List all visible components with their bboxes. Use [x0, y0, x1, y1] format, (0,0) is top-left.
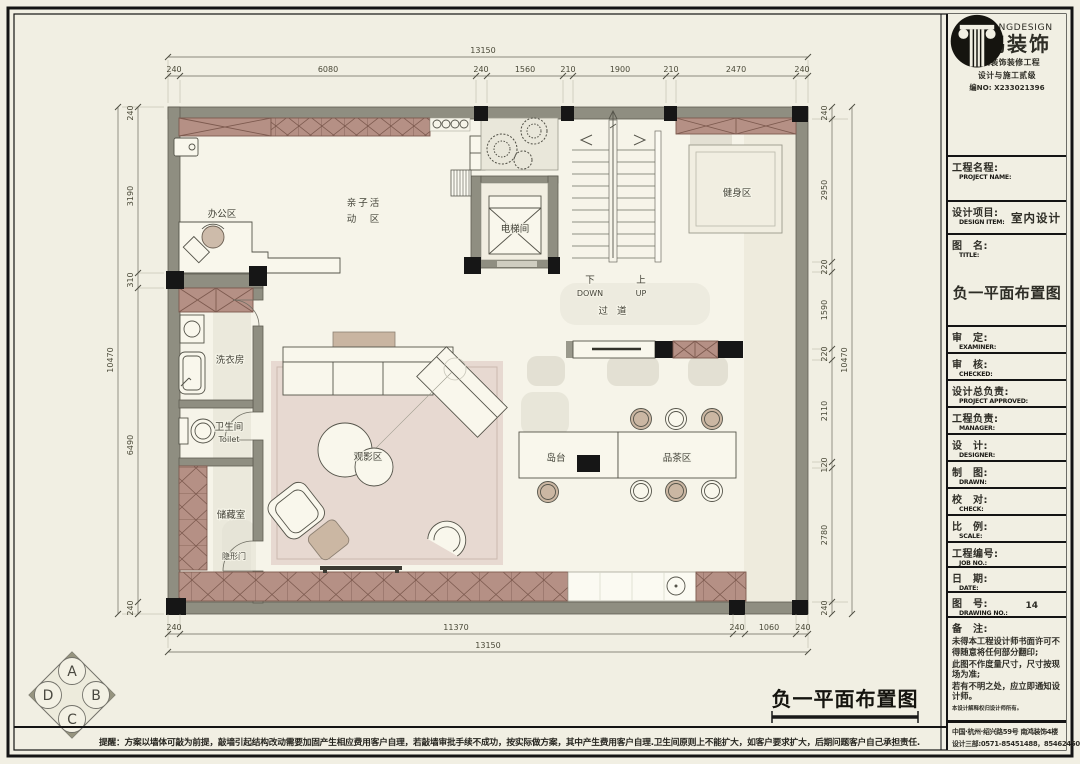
- company-address: 中国·杭州·绍兴路59号 南鸿装饰4楼: [952, 726, 1062, 736]
- field-drawn: 制 图: DRAWN:: [948, 462, 1066, 489]
- note-2: 此图不作度量尺寸，尺寸按现场为准;: [952, 659, 1062, 680]
- label-corridor: 过 道: [598, 305, 629, 317]
- svg-text:B: B: [91, 688, 101, 704]
- svg-text:1590: 1590: [820, 300, 829, 320]
- label-stairs-up-zh: 上: [636, 275, 646, 286]
- svg-text:2950: 2950: [820, 180, 829, 200]
- svg-text:240: 240: [473, 65, 488, 74]
- svg-text:1560: 1560: [515, 65, 535, 74]
- svg-text:210: 210: [560, 65, 575, 74]
- laundry-fixtures: [179, 315, 205, 394]
- label-island: 岛台: [546, 452, 565, 464]
- svg-text:10470: 10470: [106, 347, 115, 372]
- console-cabinet: [566, 341, 743, 358]
- svg-text:1900: 1900: [610, 65, 630, 74]
- svg-text:240: 240: [729, 623, 744, 632]
- svg-text:2470: 2470: [726, 65, 746, 74]
- label-cinema: 观影区: [354, 452, 383, 463]
- label-hidden-door: 隐形门: [222, 551, 246, 561]
- field-checked: 审 核: CHECKED:: [948, 354, 1066, 381]
- field-design-item: 设计项目: DESIGN ITEM: 室内设计: [948, 202, 1066, 235]
- label-tea: 品茶区: [663, 452, 692, 464]
- drawing-sheet: 办公区 亲子活 动 区 电梯间 健身区 过 道 洗衣房 卫生间 Toilet 储…: [0, 0, 1080, 764]
- field-check: 校 对: CHECK:: [948, 489, 1066, 516]
- field-project-name: 工程名程: PROJECT NAME:: [948, 157, 1066, 202]
- svg-text:220: 220: [820, 346, 829, 361]
- svg-text:10470: 10470: [840, 347, 849, 372]
- label-stairs-down-zh: 下: [585, 275, 595, 286]
- label-toilet-en: Toilet: [218, 435, 240, 444]
- label-stairs-up-en: UP: [636, 289, 647, 298]
- cert-no: 编NO: X233021396: [952, 83, 1062, 93]
- svg-text:1060: 1060: [759, 623, 779, 632]
- design-item-value: 室内设计: [1011, 210, 1061, 226]
- note-1: 未得本工程设计师书面许可不得随意将任何部分翻印;: [952, 636, 1062, 657]
- label-elevator: 电梯间: [501, 223, 530, 235]
- svg-text:13150: 13150: [470, 46, 495, 55]
- svg-text:240: 240: [820, 105, 829, 120]
- floor-plan-drawing: 办公区 亲子活 动 区 电梯间 健身区 过 道 洗衣房 卫生间 Toilet 储…: [0, 0, 1080, 764]
- company-phone: 设计三部:0571-85451488，85462450: [952, 738, 1062, 748]
- svg-text:A: A: [67, 664, 77, 680]
- note-small: 本设计解释权归设计师所有。: [952, 704, 1062, 712]
- svg-text:240: 240: [126, 105, 135, 120]
- svg-text:3190: 3190: [126, 186, 135, 206]
- company-logo-block: NANHONGDESIGN 南鸿装饰 建筑装饰装修工程 设计与施工贰级 编NO:…: [948, 14, 1066, 157]
- field-manager: 工程负责: MANAGER:: [948, 408, 1066, 435]
- field-date: 日 期: DATE:: [948, 568, 1066, 593]
- svg-text:13150: 13150: [475, 641, 500, 650]
- field-examiner: 审 定: EXAMINER:: [948, 327, 1066, 354]
- svg-text:6080: 6080: [318, 65, 338, 74]
- svg-text:240: 240: [166, 65, 181, 74]
- svg-text:210: 210: [663, 65, 678, 74]
- field-title: 图 名: TITLE: 负一平面布置图: [948, 235, 1066, 327]
- field-designer: 设 计: DESIGNER:: [948, 435, 1066, 462]
- svg-text:2110: 2110: [820, 401, 829, 421]
- svg-text:11370: 11370: [443, 623, 468, 632]
- field-job-no: 工程编号: JOB NO.:: [948, 543, 1066, 568]
- label-storage: 储藏室: [217, 509, 246, 521]
- label-toilet-zh: 卫生间: [215, 421, 244, 433]
- tv-icon: [320, 566, 402, 570]
- reminder-note: 提醒：方案以墙体可敲为前提，敲墙引起结构改动需要加固产生相应费用客户自理，若敲墙…: [99, 735, 944, 748]
- sheet-drawing-title: 负一平面布置图: [770, 683, 920, 712]
- drawing-title-value: 负一平面布置图: [948, 282, 1066, 303]
- title-block: NANHONGDESIGN 南鸿装饰 建筑装饰装修工程 设计与施工贰级 编NO:…: [946, 14, 1066, 750]
- field-notes: 备 注: 未得本工程设计师书面许可不得随意将任何部分翻印; 此图不作度量尺寸，尺…: [948, 618, 1066, 722]
- svg-text:240: 240: [795, 623, 810, 632]
- svg-text:120: 120: [820, 457, 829, 472]
- svg-text:240: 240: [126, 600, 135, 615]
- company-footer: 中国·杭州·绍兴路59号 南鸿装饰4楼 设计三部:0571-85451488，8…: [948, 722, 1066, 750]
- column-logo-icon: [948, 14, 1006, 72]
- elevator: [481, 183, 548, 260]
- field-project-approved: 设计总负责: PROJECT APPROVED:: [948, 381, 1066, 408]
- svg-text:240: 240: [794, 65, 809, 74]
- label-laundry: 洗衣房: [216, 354, 245, 366]
- field-scale: 比 例: SCALE:: [948, 516, 1066, 543]
- svg-text:220: 220: [820, 259, 829, 274]
- svg-text:D: D: [43, 688, 54, 704]
- compass-rose: A B C D: [29, 652, 115, 738]
- label-stairs-down-en: DOWN: [577, 289, 603, 298]
- cooktop-icon: [577, 455, 600, 472]
- note-3: 若有不明之处，应立即通知设计师。: [952, 681, 1062, 702]
- drawing-no-value: 14: [1025, 601, 1038, 611]
- svg-text:240: 240: [166, 623, 181, 632]
- svg-text:310: 310: [126, 272, 135, 287]
- svg-text:240: 240: [820, 600, 829, 615]
- svg-text:C: C: [67, 712, 77, 728]
- title-underline: [772, 711, 918, 723]
- label-activity-2: 动 区: [347, 214, 382, 225]
- label-activity-1: 亲子活: [347, 197, 382, 209]
- svg-text:2780: 2780: [820, 525, 829, 545]
- field-drawing-no: 图 号: DRAWING NO.: 14: [948, 593, 1066, 618]
- svg-text:6490: 6490: [126, 435, 135, 455]
- label-office: 办公区: [208, 208, 237, 220]
- label-gym: 健身区: [723, 187, 752, 199]
- toilet-fixture: [179, 418, 215, 444]
